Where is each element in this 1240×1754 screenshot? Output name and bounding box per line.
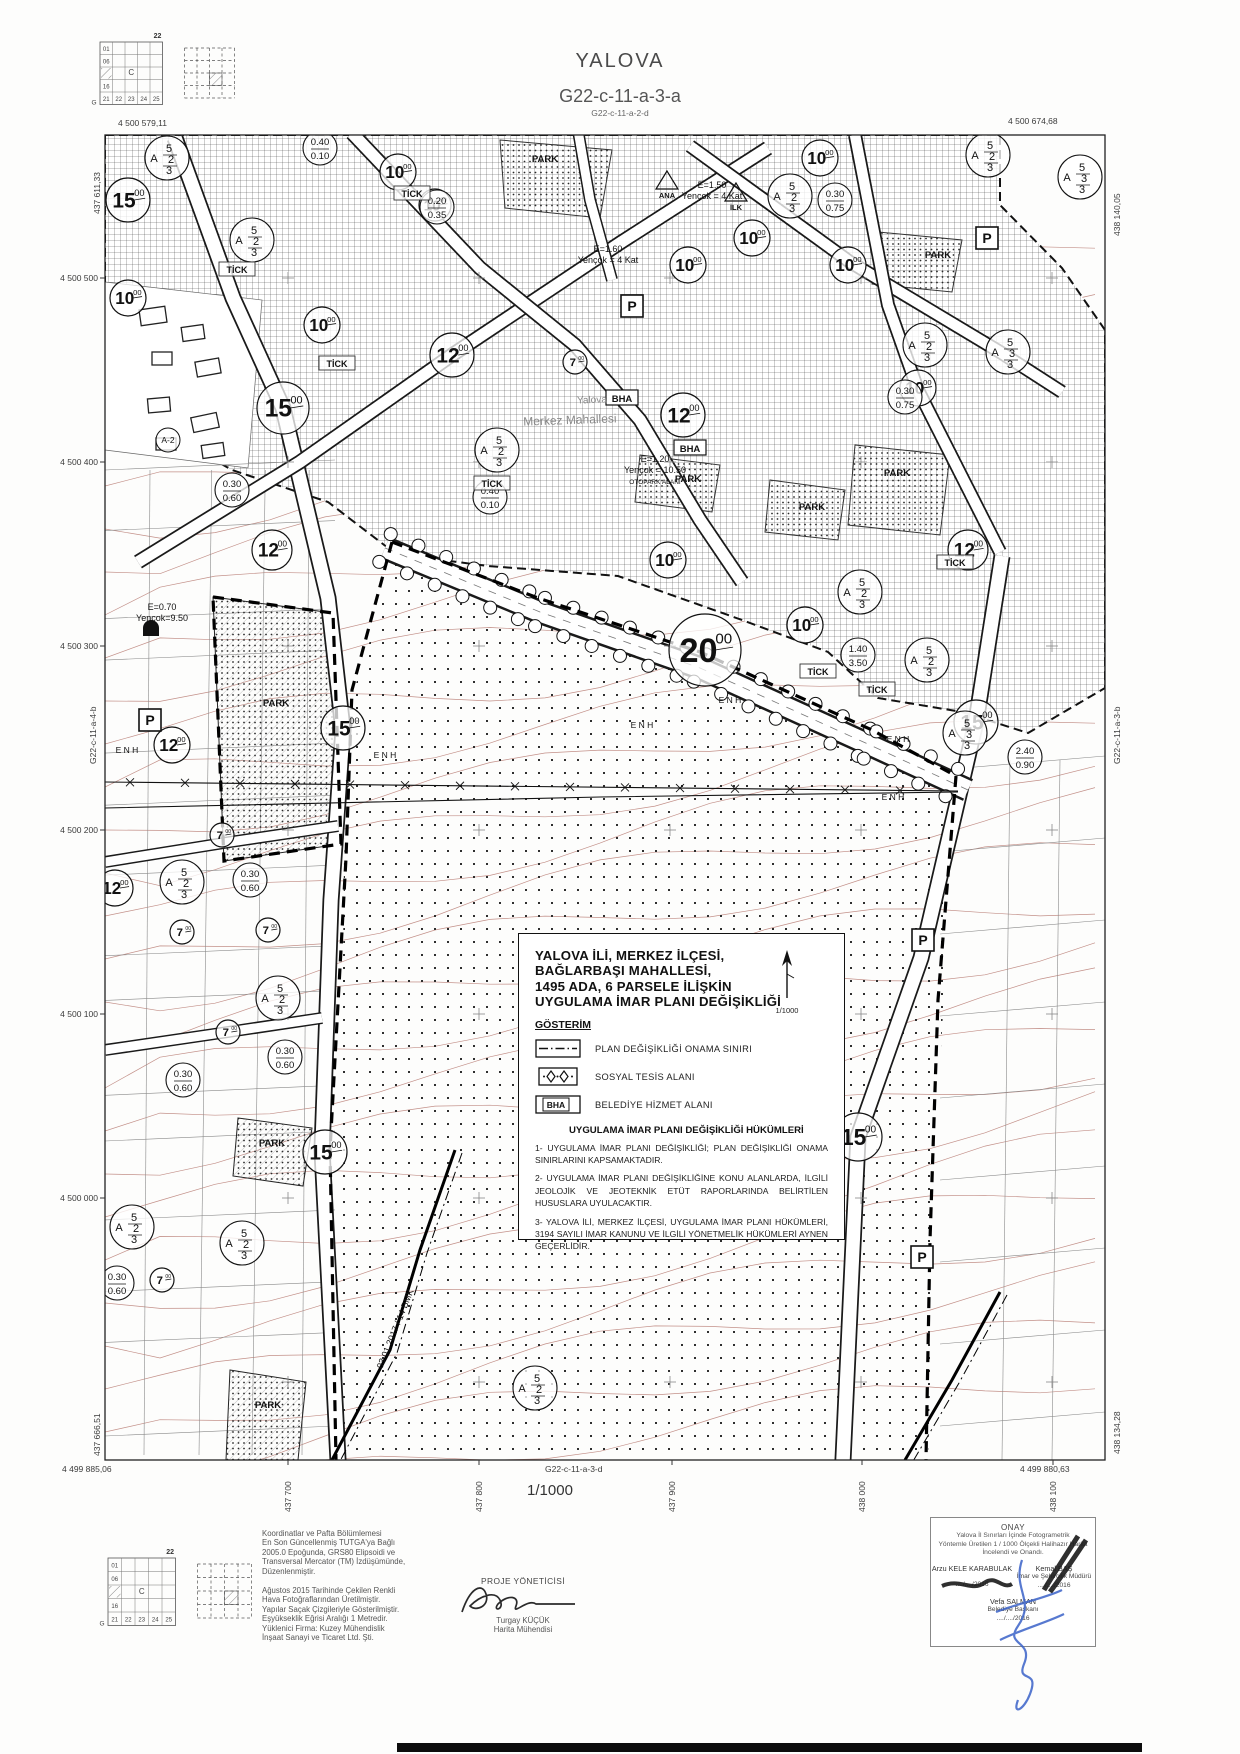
note-line: Ağustos 2015 Tarihinde Çekilen Renkli xyxy=(262,1586,405,1595)
approval-signer-1: Arzu KELE KARABULAK ..../..../2016 xyxy=(931,1565,1013,1590)
north-arrow: 1/1000 xyxy=(772,948,802,1015)
zone-code-row: 3 xyxy=(496,457,502,469)
emsal-note: OTOPARK ALANI xyxy=(629,479,681,486)
school-label: İLK xyxy=(730,203,743,212)
road-width-value: 7 xyxy=(157,1275,163,1287)
project-manager-role: Harita Mühendisi xyxy=(448,1625,598,1634)
road-width-value: 12 xyxy=(159,736,178,755)
zone-code-letter: A xyxy=(165,877,173,889)
ratio-bottom: 0.75 xyxy=(826,203,845,214)
plan-sheet-page: 1500150015001500150015002000120012001200… xyxy=(0,0,1240,1754)
road-width-decimals: 00 xyxy=(825,148,833,157)
road-width-value: 10 xyxy=(675,256,694,275)
note-line: Düzenlenmiştir. xyxy=(262,1567,405,1576)
ratio-top: 0.30 xyxy=(276,1046,295,1057)
legend-label: PLAN DEĞİŞİKLİĞİ ONAMA SINIRI xyxy=(595,1044,752,1054)
approval-title: ONAY xyxy=(931,1523,1095,1532)
building-footprint xyxy=(147,397,170,413)
enh-label: E N H xyxy=(882,792,905,802)
parking-label: P xyxy=(145,712,154,728)
parking-label: P xyxy=(917,1249,926,1265)
road-width-value: 10 xyxy=(792,616,811,635)
north-arrow-icon xyxy=(774,948,800,1000)
ratio-top: 0.30 xyxy=(108,1272,127,1283)
grid-corner-label: G xyxy=(91,100,96,107)
pafta-index-grid: 0106162122232425C22G xyxy=(99,1549,251,1628)
road-width-decimals: 00 xyxy=(693,255,701,264)
zone-code-letter: A xyxy=(261,993,269,1005)
zone-code-letter: A xyxy=(150,153,158,165)
emsal-note: Yençok=9.50 xyxy=(136,613,188,623)
zone-code-letter: A xyxy=(1063,172,1071,184)
ratio-bottom: 0.60 xyxy=(174,1083,193,1094)
road-width-value: 10 xyxy=(309,316,328,335)
grid-cell-label: 22 xyxy=(125,1618,132,1624)
bha-label: BHA xyxy=(612,394,633,405)
tick-zone-label: TİCK xyxy=(402,189,423,199)
park-label: PARK xyxy=(799,502,825,513)
note-line: İnşaat Sanayi ve Ticaret Ltd. Şti. xyxy=(262,1633,405,1642)
road-width-value: 12 xyxy=(436,344,459,367)
grid-cell-label: 23 xyxy=(128,97,135,103)
approval-line: Yöntemle Üretilen 1 / 1000 Ölçekli Halih… xyxy=(931,1541,1095,1550)
note-line: Yapılar Saçak Çizgileriyle Gösterilmişti… xyxy=(262,1605,405,1614)
grid-cell-label: 22 xyxy=(115,97,122,103)
road-width-decimals: 00 xyxy=(290,394,302,406)
signer-date: ..../..../2016 xyxy=(1013,1582,1095,1590)
grid-cell-label: 21 xyxy=(103,97,110,103)
ratio-bottom: 0.35 xyxy=(428,210,447,221)
ratio-top: 1.40 xyxy=(849,644,868,655)
road-width-decimals: 00 xyxy=(327,315,335,324)
ratio-top: 0.30 xyxy=(896,386,915,397)
road-width-value: 10 xyxy=(835,256,854,275)
road-width-decimals: 00 xyxy=(853,255,861,264)
legend-label: BELEDİYE HİZMET ALANI xyxy=(595,1100,713,1110)
road-width-value: 7 xyxy=(263,925,269,937)
zone-code-letter: A xyxy=(910,655,918,667)
zone-code-row: 3 xyxy=(789,203,795,215)
ratio-bottom: 0.60 xyxy=(276,1060,295,1071)
signer-name: Vefa SALMAN xyxy=(931,1598,1095,1606)
signer-date: ..../..../2016 xyxy=(931,1615,1095,1623)
building-footprint xyxy=(201,443,225,459)
road-width-decimals: 00 xyxy=(458,343,468,353)
zone-code-row: 3 xyxy=(964,740,970,752)
note-line: 2005.0 Epoğunda, GRS80 Elipsoidi ve xyxy=(262,1548,405,1557)
tick-zone-label: TİCK xyxy=(945,558,966,568)
park-label: PARK xyxy=(263,698,289,709)
road-width-decimals: 00 xyxy=(689,403,699,413)
signer-name: Arzu KELE KARABULAK xyxy=(931,1565,1013,1573)
road-width-value: 7 xyxy=(223,1027,229,1039)
grid-cell-label: 16 xyxy=(103,84,110,90)
emsal-note: E=0.70 xyxy=(148,602,177,612)
approval-mayor: Vefa SALMAN Belediye Başkanı ..../..../2… xyxy=(931,1598,1095,1623)
approval-line: İncelendi ve Onandı. xyxy=(931,1549,1095,1558)
emsal-note: E=1.20 xyxy=(641,454,670,464)
zone-code-row: 3 xyxy=(251,247,257,259)
road-width-value: 12 xyxy=(667,404,690,427)
road-width-value: 15 xyxy=(327,717,351,740)
enh-label: E N H xyxy=(374,750,397,760)
map-graphics: 1500150015001500150015002000120012001200… xyxy=(97,113,1105,1518)
signer-name: Kemal BAŞ xyxy=(1013,1565,1095,1573)
legend-row-municipal-service: BHA BELEDİYE HİZMET ALANI xyxy=(535,1095,832,1115)
scan-artifact-strip xyxy=(397,1743,1142,1752)
enh-label: E N H xyxy=(631,720,654,730)
grid-center-label: C xyxy=(139,1587,145,1596)
zone-code-row: 3 xyxy=(534,1395,540,1407)
grid-cell-label: 24 xyxy=(140,97,147,103)
park-label: PARK xyxy=(884,468,910,479)
zone-code-row: 3 xyxy=(277,1005,283,1017)
note-line: Yüklenici Firma: Kuzey Mühendislik xyxy=(262,1624,405,1633)
plan-boundary-symbol-icon xyxy=(535,1039,581,1058)
signer-role: Belediye Başkanı xyxy=(931,1606,1095,1614)
road-width-decimals: 00 xyxy=(120,878,128,887)
emsal-note: E=1.50 xyxy=(698,180,727,190)
park-area-hatch xyxy=(233,1118,312,1186)
building-footprint xyxy=(181,325,205,342)
road-width-value: 15 xyxy=(309,1141,333,1164)
zone-code-letter: A xyxy=(991,347,999,359)
road-width-value: 15 xyxy=(112,189,136,212)
ratio-top: 0.30 xyxy=(241,869,260,880)
road-width-decimals: 00 xyxy=(278,538,288,548)
park-label: PARK xyxy=(259,1138,285,1149)
grid-cell-label: 01 xyxy=(111,1563,118,1569)
ratio-bottom: 0.60 xyxy=(223,493,242,504)
grid-cell-label: 24 xyxy=(152,1618,159,1624)
grid-corner-label: G xyxy=(99,1621,104,1628)
ratio-top: 2.40 xyxy=(1016,746,1035,757)
signer-date: ..../..../2016 xyxy=(931,1581,1013,1589)
ratio-bottom: 3.50 xyxy=(849,658,868,669)
grid-cell-label: 16 xyxy=(111,1604,118,1610)
road-width-decimals: 00 xyxy=(134,188,144,198)
tick-zone-label: TİCK xyxy=(227,265,248,275)
legend-label: SOSYAL TESİS ALANI xyxy=(595,1072,695,1082)
zone-code-row: 3 xyxy=(241,1250,247,1262)
svg-text:BHA: BHA xyxy=(547,1100,565,1110)
grid-cell-label: 21 xyxy=(111,1618,118,1624)
road-width-decimals: 00 xyxy=(865,1125,877,1136)
parking-label: P xyxy=(627,298,636,314)
road-width-decimals: 00 xyxy=(177,735,185,744)
note-line: Hava Fotoğraflarından Üretilmiştir. xyxy=(262,1595,405,1604)
ratio-bottom: 0.60 xyxy=(241,883,260,894)
approval-line: Yalova İl Sınırları İçinde Fotogrametrik xyxy=(931,1532,1095,1541)
road-width-decimals: 00 xyxy=(974,538,984,548)
road-width-value: 10 xyxy=(807,149,826,168)
park-area-hatch xyxy=(226,1370,306,1460)
emsal-note: Yençok = 10.50 xyxy=(624,465,686,475)
road-width-decimals: 00 xyxy=(331,1140,341,1150)
bha-label: BHA xyxy=(680,444,701,455)
tick-zone-label: TİCK xyxy=(327,359,348,369)
provisions-title: UYGULAMA İMAR PLANI DEĞİŞİKLİĞİ HÜKÜMLER… xyxy=(569,1125,832,1136)
place-name-label: Yalova xyxy=(577,394,608,406)
park-label: PARK xyxy=(255,1400,281,1411)
park-area xyxy=(848,445,950,535)
approval-block: ONAY Yalova İl Sınırları İçinde Fotogram… xyxy=(930,1517,1096,1647)
school-label: ANA xyxy=(659,191,676,200)
emsal-note: E=1.60 xyxy=(594,244,623,254)
ratio-bottom: 0.10 xyxy=(481,500,500,511)
legend-row-social-facility: SOSYAL TESİS ALANI xyxy=(535,1067,832,1087)
road-width-value: 10 xyxy=(385,163,404,182)
road-width-value: 10 xyxy=(739,229,758,248)
road-width-decimals: 00 xyxy=(757,228,765,237)
ratio-bottom: 0.90 xyxy=(1016,760,1035,771)
road-width-decimals: 00 xyxy=(810,615,818,624)
zone-code-letter: A xyxy=(908,340,916,352)
zone-code-row: 3 xyxy=(166,165,172,177)
grid-cell-label: 23 xyxy=(138,1618,145,1624)
map-canvas: 1500150015001500150015002000120012001200… xyxy=(0,0,1240,1754)
ratio-top: 0.30 xyxy=(174,1069,193,1080)
north-arrow-scale: 1/1000 xyxy=(772,1006,802,1015)
grid-sheet-label: 22 xyxy=(154,33,162,40)
approval-signer-2: Kemal BAŞ İmar ve Şehircilik Müdürü ....… xyxy=(1013,1565,1095,1590)
road-width-decimals: 00 xyxy=(673,550,681,559)
note-line: Transversal Mercator (TM) İzdüşümünde, xyxy=(262,1557,405,1566)
project-manager-title: PROJE YÖNETİCİSİ xyxy=(448,1576,598,1586)
pafta-index-grid: 0106162122232425C22G xyxy=(91,33,234,107)
zone-code-row: 3 xyxy=(131,1234,137,1246)
project-manager-block: PROJE YÖNETİCİSİ Turgay KÜÇÜK Harita Müh… xyxy=(448,1576,598,1634)
signer-role: İmar ve Şehircilik Müdürü xyxy=(1013,1573,1095,1581)
building-footprint xyxy=(139,306,167,325)
zone-code-letter: A xyxy=(115,1222,123,1234)
ratio-bottom: 0.75 xyxy=(896,400,915,411)
zone-code-row: 3 xyxy=(926,667,932,679)
grid-cell-label: 01 xyxy=(103,47,110,53)
bha-symbol-icon: BHA xyxy=(535,1095,581,1114)
emsal-note: Yençok = 4 Kat xyxy=(578,255,639,265)
zone-code-letter: A xyxy=(225,1238,233,1250)
ratio-bottom: 0.60 xyxy=(108,1286,127,1297)
zone-code-row: 3 xyxy=(1079,184,1085,196)
zone-code-row: 3 xyxy=(859,599,865,611)
road-width-value: 10 xyxy=(115,289,134,308)
enh-label: E N H xyxy=(719,695,742,705)
zone-code-letter: A xyxy=(971,150,979,162)
legend-title: GÖSTERİM xyxy=(535,1019,832,1031)
provision-item: 2- UYGULAMA İMAR PLANI DEĞİŞİKLİĞİNE KON… xyxy=(535,1172,832,1209)
provision-item: 3- YALOVA İLİ, MERKEZ İLÇESİ, UYGULAMA İ… xyxy=(535,1216,832,1253)
park-label: PARK xyxy=(532,154,558,165)
zone-code-row: 3 xyxy=(987,162,993,174)
road-width-decimals: 00 xyxy=(133,288,141,297)
grid-cell-label: 06 xyxy=(103,59,110,65)
grid-center-label: C xyxy=(128,68,134,77)
zone-code-row: 3 xyxy=(924,352,930,364)
road-width-value: 10 xyxy=(655,551,674,570)
road-width-decimals: 00 xyxy=(982,710,992,720)
zone-code-letter: A xyxy=(773,191,781,203)
legend-row-boundary: PLAN DEĞİŞİKLİĞİ ONAMA SINIRI xyxy=(535,1039,832,1059)
tick-zone-label: TİCK xyxy=(808,667,829,677)
enh-label: E N H xyxy=(116,745,139,755)
ratio-top: 0.20 xyxy=(428,196,447,207)
road-width-decimals: 00 xyxy=(403,162,411,171)
coordinate-note: Koordinatlar ve Pafta Bölümlemesi En Son… xyxy=(262,1529,405,1642)
zone-code-row: 3 xyxy=(1007,359,1013,371)
zone-small-label: A-2 xyxy=(161,435,175,445)
grid-cell-label: 06 xyxy=(111,1577,118,1583)
tick-zone-label: TİCK xyxy=(482,479,503,489)
ratio-top: 0.40 xyxy=(311,137,330,148)
ratio-bottom: 0.10 xyxy=(311,151,330,162)
road-width-decimals: 00 xyxy=(715,631,732,648)
project-manager-name: Turgay KÜÇÜK xyxy=(448,1616,598,1625)
road-width-value: 7 xyxy=(570,357,576,369)
zone-code-letter: A xyxy=(948,728,956,740)
note-line: Eşyükseklik Eğrisi Aralığı 1 Metredir. xyxy=(262,1614,405,1623)
title-block: YALOVA İLİ, MERKEZ İLÇESİ, BAĞLARBAŞI MA… xyxy=(518,933,845,1240)
road-width-decimals: 00 xyxy=(349,716,359,726)
road-width-decimals: 00 xyxy=(923,378,931,387)
social-facility-symbol-icon xyxy=(535,1067,581,1086)
ratio-top: 0.30 xyxy=(223,479,242,490)
zone-code-row: 3 xyxy=(181,889,187,901)
ratio-top: 0.30 xyxy=(826,189,845,200)
road-width-value: 7 xyxy=(217,830,223,842)
building-footprint xyxy=(152,352,172,365)
emsal-note: Yençok = 4 Kat xyxy=(682,191,743,201)
grid-sheet-label: 22 xyxy=(166,1549,174,1556)
road-width-value: 12 xyxy=(258,541,279,562)
grid-cell-label: 25 xyxy=(153,97,160,103)
road-width-value: 15 xyxy=(265,396,293,423)
zone-code-letter: A xyxy=(843,587,851,599)
road-width-value: 7 xyxy=(177,927,183,939)
tick-zone-label: TİCK xyxy=(867,685,888,695)
parking-label: P xyxy=(982,230,991,246)
park-label: PARK xyxy=(925,250,951,261)
zone-code-letter: A xyxy=(235,235,243,247)
provision-item: 1- UYGULAMA İMAR PLANI DEĞİŞİKLİĞİ; PLAN… xyxy=(535,1142,832,1167)
enh-label: E N H xyxy=(887,734,910,744)
building-footprint xyxy=(195,358,221,377)
parking-label: P xyxy=(918,932,927,948)
note-line: En Son Güncellenmiş TUTGA'ya Bağlı xyxy=(262,1538,405,1547)
zone-code-letter: A xyxy=(518,1383,526,1395)
road-width-value: 20 xyxy=(680,632,718,670)
zone-code-letter: A xyxy=(480,445,488,457)
grid-cell-label: 25 xyxy=(165,1618,172,1624)
note-line: Koordinatlar ve Pafta Bölümlemesi xyxy=(262,1529,405,1538)
